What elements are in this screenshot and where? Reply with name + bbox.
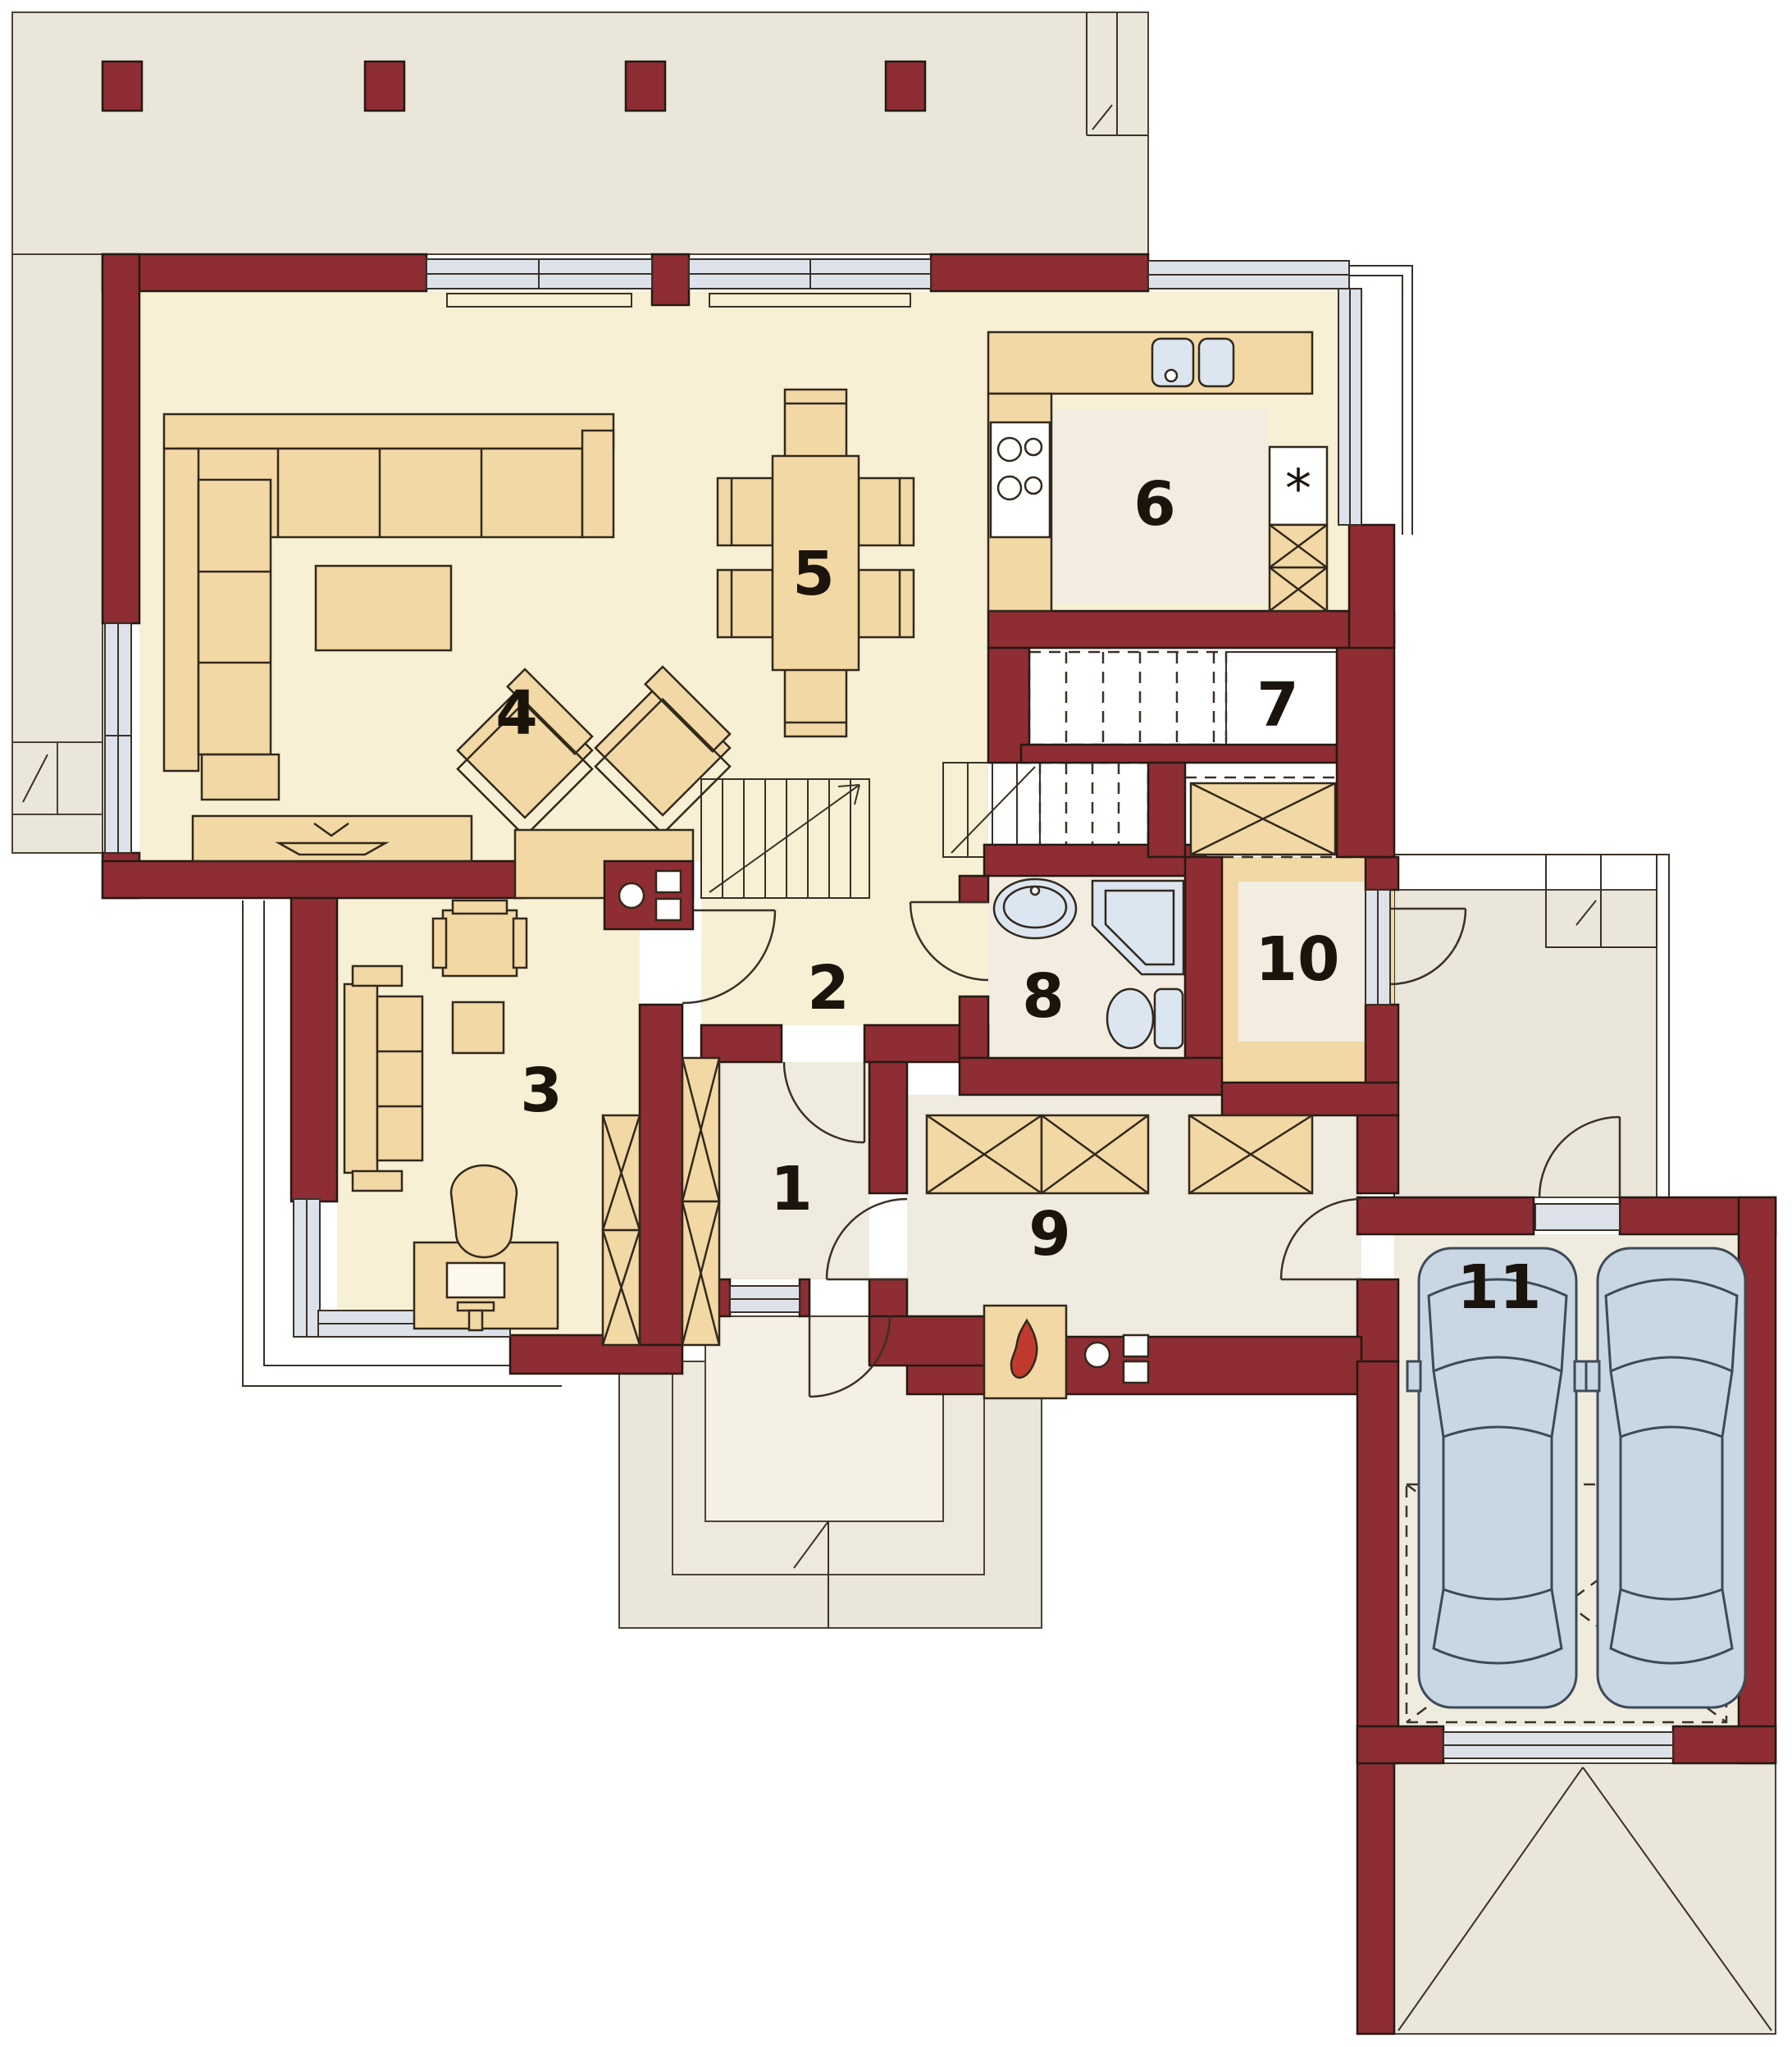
floor-plan: * [0, 0, 1792, 2047]
side-porch [1394, 855, 1669, 1197]
wall-pier [652, 254, 689, 305]
wall [1357, 1361, 1398, 1763]
bookshelf-x-icon [603, 1115, 640, 1345]
wall [640, 1005, 682, 1345]
room-label-11: 11 [1457, 1252, 1542, 1323]
wall [1357, 1726, 1443, 1763]
wall [1673, 1726, 1776, 1763]
room-label-9: 9 [1028, 1199, 1071, 1270]
office-armchair [433, 900, 527, 976]
driveway [1394, 1763, 1776, 2034]
wall [1357, 1115, 1398, 1193]
side-table [453, 1002, 504, 1053]
toilet-icon [1107, 989, 1183, 1048]
terrace-pillar-icon [365, 62, 404, 111]
wall [869, 1062, 907, 1193]
wall [960, 996, 988, 1058]
car-icon [1586, 1248, 1745, 1707]
cabinet-x-icon [1191, 783, 1335, 855]
terrace-pillar-icon [103, 62, 142, 111]
terrace [12, 12, 1148, 254]
kitchen-counter [988, 332, 1312, 394]
fireplace-dial-icon [619, 883, 644, 908]
tv-icon [279, 843, 385, 855]
fridge-symbol: * [1285, 459, 1311, 520]
coffee-table [316, 566, 451, 650]
room-label-2: 2 [807, 953, 850, 1023]
wall [1185, 857, 1222, 1058]
cabinet-x-icon [1270, 525, 1327, 611]
room-label-10: 10 [1256, 924, 1340, 995]
office-sofa [344, 966, 422, 1191]
wall [1357, 1279, 1398, 1361]
cabinet-x-icon [927, 1115, 1312, 1193]
garage-side-door-sill [1535, 1204, 1620, 1230]
wall [1349, 525, 1394, 648]
dining-chair [785, 667, 846, 736]
room-label-1: 1 [770, 1154, 813, 1224]
wall [960, 1058, 1222, 1095]
dining-chair [718, 478, 773, 545]
cooktop-icon [991, 422, 1050, 537]
wall [103, 254, 139, 623]
wall [1357, 1763, 1394, 2034]
terrace-corner-steps [12, 742, 103, 853]
dining-chair [718, 570, 773, 637]
room-label-8: 8 [1022, 961, 1065, 1032]
wardrobe-x-icon [682, 1058, 719, 1345]
dining-chair [785, 390, 846, 459]
room-label-7: 7 [1256, 670, 1299, 741]
wall [1357, 1197, 1534, 1234]
dining-chair [859, 478, 914, 545]
wall [291, 898, 337, 1201]
wall [1366, 857, 1398, 890]
wall [1337, 648, 1394, 857]
desk-chair [451, 1165, 517, 1257]
wall [869, 1316, 989, 1365]
room-label-5: 5 [792, 539, 835, 609]
terrace-pillar-icon [886, 62, 925, 111]
room-label-6: 6 [1133, 469, 1176, 540]
wall [931, 254, 1148, 291]
dining-chair [859, 570, 914, 637]
wall [988, 611, 1394, 648]
room-label-3: 3 [520, 1055, 563, 1126]
room-label-4: 4 [495, 678, 538, 749]
tv-sideboard [193, 816, 472, 861]
wall [800, 1279, 809, 1316]
wall [1222, 1083, 1398, 1115]
wall [1148, 763, 1185, 857]
wall [103, 254, 426, 291]
wall [103, 861, 525, 898]
wall [960, 876, 988, 902]
kitchen-sink-icon [1199, 339, 1233, 386]
wall [701, 1025, 782, 1062]
wall [1366, 1005, 1398, 1083]
monitor-icon [447, 1263, 504, 1297]
wall [1021, 745, 1337, 763]
terrace-pillar-icon [626, 62, 665, 111]
